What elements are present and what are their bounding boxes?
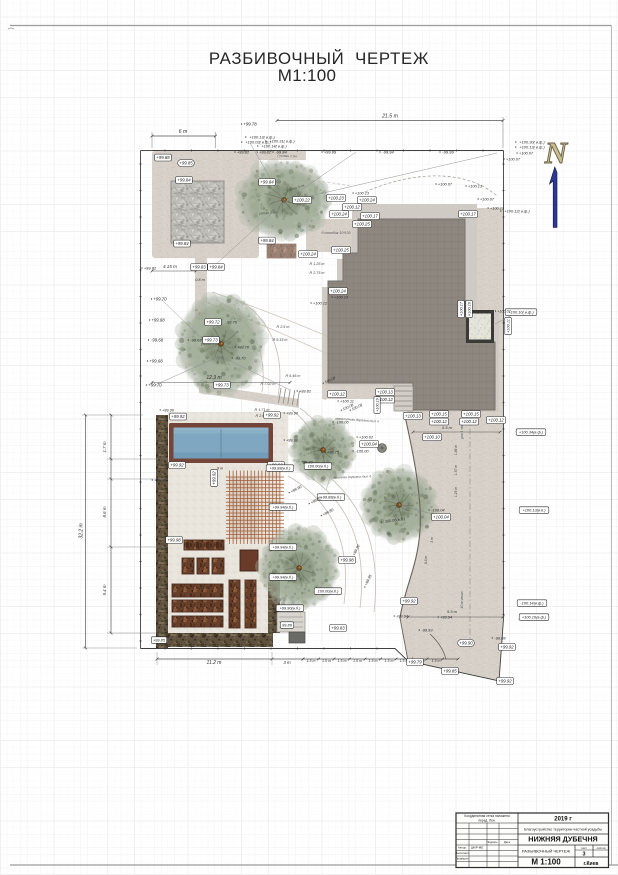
svg-text:+100.34(в.ф.): +100.34(в.ф.) xyxy=(519,429,544,434)
svg-text:3: 3 xyxy=(582,852,585,858)
svg-text:2019 г: 2019 г xyxy=(554,817,572,823)
svg-text:+99.95: +99.95 xyxy=(364,573,373,586)
svg-text:б столбик 10*100: б столбик 10*100 xyxy=(321,231,350,235)
svg-text:+100.13: +100.13 xyxy=(475,309,489,313)
svg-text:+100.13: +100.13 xyxy=(490,205,505,210)
svg-text:+100.10: +100.10 xyxy=(424,435,440,440)
svg-text:+100.12: +100.12 xyxy=(329,392,345,397)
svg-text:Подпись: Подпись xyxy=(486,840,498,844)
svg-text:+100.14( в.ф.): +100.14( в.ф.) xyxy=(261,143,287,148)
svg-text:+99.73: +99.73 xyxy=(204,338,218,343)
svg-text:1.5 m: 1.5 m xyxy=(322,659,331,663)
svg-text:+99.94: +99.94 xyxy=(396,613,409,618)
svg-text:1.65 m: 1.65 m xyxy=(161,445,165,456)
svg-text:+100.13(в.я.): +100.13(в.я.) xyxy=(522,507,546,512)
svg-text:ШИР-МЕ: ШИР-МЕ xyxy=(471,846,483,850)
svg-text:-100.14(в.ф.): -100.14(в.ф.) xyxy=(520,600,544,605)
svg-text:+99.83: +99.83 xyxy=(192,265,206,270)
svg-text:+100.13: +100.13 xyxy=(377,390,393,395)
svg-text:1.5 m: 1.5 m xyxy=(307,659,316,663)
svg-text:+99.92: +99.92 xyxy=(212,471,217,485)
svg-text:+100.13: +100.13 xyxy=(468,183,483,188)
svg-text:8.6 m: 8.6 m xyxy=(102,506,107,517)
svg-text:+100.13: +100.13 xyxy=(355,190,370,195)
svg-text:*99.80: *99.80 xyxy=(301,459,313,464)
svg-text:-99.70: -99.70 xyxy=(234,355,246,360)
svg-text:1.5 m: 1.5 m xyxy=(338,659,347,663)
svg-text:+99.88: +99.88 xyxy=(156,155,170,160)
svg-text:R 2.75 m: R 2.75 m xyxy=(310,271,325,275)
svg-text:+100.22: +100.22 xyxy=(294,198,310,203)
svg-text:+99.98: +99.98 xyxy=(340,558,354,563)
svg-text:+100.25: +100.25 xyxy=(333,248,349,253)
svg-text:5.5 m: 5.5 m xyxy=(442,425,453,430)
svg-text:+99.92: +99.92 xyxy=(171,414,185,419)
svg-text:М 1:100: М 1:100 xyxy=(531,858,561,867)
svg-text:+100.12( в.ф.): +100.12( в.ф.) xyxy=(504,208,530,213)
svg-text:+100.17: +100.17 xyxy=(458,301,463,316)
svg-text:+99.94(в.б.): +99.94(в.б.) xyxy=(273,574,295,579)
svg-text:-99.93: -99.93 xyxy=(421,627,433,632)
svg-text:R 1.25 m: R 1.25 m xyxy=(310,262,325,266)
svg-text:+100.11: +100.11 xyxy=(505,319,510,333)
svg-text:+99.82: +99.82 xyxy=(259,150,272,154)
svg-text:+100.04: +100.04 xyxy=(433,515,449,520)
svg-text:+99.90: +99.90 xyxy=(162,407,175,412)
svg-text:+100.07: +100.07 xyxy=(497,309,511,313)
svg-text:21.5 m: 21.5 m xyxy=(381,114,399,120)
svg-text:НИЖНЯЯ ДУБЕЧНЯ: НИЖНЯЯ ДУБЕЧНЯ xyxy=(528,835,597,844)
svg-text:+99.84: +99.84 xyxy=(209,265,223,270)
svg-text:+100.12: +100.12 xyxy=(431,419,447,424)
svg-text:+99.90: +99.90 xyxy=(286,410,299,415)
svg-text:г.Киев: г.Киев xyxy=(584,861,599,867)
svg-text:+99.92: +99.92 xyxy=(500,645,514,650)
svg-text:1.5 m: 1.5 m xyxy=(385,659,394,663)
svg-text:0.8 m: 0.8 m xyxy=(195,278,205,282)
svg-text:5.5 m: 5.5 m xyxy=(447,609,458,614)
svg-text:12.3 m: 12.3 m xyxy=(206,375,221,381)
svg-text:99.70: 99.70 xyxy=(227,319,238,324)
svg-text:Проверил: Проверил xyxy=(456,857,469,861)
svg-text:+99.88(в.б.): +99.88(в.б.) xyxy=(321,494,343,499)
svg-text:+100.24: +100.24 xyxy=(331,212,347,217)
svg-text:+99.85: +99.85 xyxy=(153,637,166,642)
svg-text:+99.84: +99.84 xyxy=(177,178,191,183)
svg-text:+100.15: +100.15 xyxy=(463,412,479,417)
svg-text:R 9.15 m: R 9.15 m xyxy=(273,338,288,342)
svg-text:-100.00: -100.00 xyxy=(355,448,369,453)
svg-text:9 m: 9 m xyxy=(217,467,223,471)
svg-text:100.00(в.б.): 100.00(в.б.) xyxy=(318,588,340,593)
svg-text:-100.06: -100.06 xyxy=(335,419,349,424)
svg-text:1.5 m: 1.5 m xyxy=(432,659,441,663)
svg-text:3 m: 3 m xyxy=(430,537,434,543)
svg-text:+100.12: +100.12 xyxy=(313,300,328,305)
svg-text:-99.68: -99.68 xyxy=(190,337,202,342)
svg-text:+100.10( в.ф.): +100.10( в.ф.) xyxy=(508,309,534,314)
svg-text:+99.85: +99.85 xyxy=(179,161,193,166)
svg-text:+100.13( в.ф.): +100.13( в.ф.) xyxy=(519,144,545,149)
svg-text:+100.23: +100.23 xyxy=(328,196,344,201)
svg-text:9.4 m: 9.4 m xyxy=(102,584,107,595)
svg-text:Дата: Дата xyxy=(504,840,511,844)
svg-text:8.6 m: 8.6 m xyxy=(424,556,428,565)
svg-text:+100.15: +100.15 xyxy=(431,412,447,417)
svg-text:+100.19: +100.19 xyxy=(375,398,379,411)
svg-text:+99.90(в.б.): +99.90(в.б.) xyxy=(280,605,302,610)
svg-text:+99.90: +99.90 xyxy=(154,477,167,482)
svg-text:+99.94(в.б.): +99.94(в.б.) xyxy=(273,504,295,509)
svg-text:+100.07: +100.07 xyxy=(519,150,534,155)
svg-text:+100.24: +100.24 xyxy=(300,252,316,257)
svg-text:N: N xyxy=(544,135,569,170)
svg-text:1.57 m: 1.57 m xyxy=(454,465,458,476)
svg-text:+99.82: +99.82 xyxy=(299,388,312,393)
svg-text:перед. Лен.: перед. Лен. xyxy=(478,819,495,823)
svg-text:-100.04: -100.04 xyxy=(431,507,445,512)
svg-text:+99.84: +99.84 xyxy=(260,180,274,185)
svg-text:1.5 m: 1.5 m xyxy=(369,659,378,663)
svg-text:R 7.02 m: R 7.02 m xyxy=(261,382,276,386)
svg-text:4.9 m: 4.9 m xyxy=(200,585,211,590)
svg-text:+99.79: +99.79 xyxy=(408,660,422,665)
svg-text:-99.94: -99.94 xyxy=(382,149,394,154)
svg-text:-99.99: -99.99 xyxy=(442,149,454,154)
svg-text:+100.02: +100.02 xyxy=(359,434,374,439)
svg-text:+99.84: +99.84 xyxy=(260,238,274,243)
svg-text:+100.13: +100.13 xyxy=(405,414,421,419)
svg-text:3 m: 3 m xyxy=(283,660,291,665)
svg-text:+100.13: +100.13 xyxy=(334,294,349,299)
svg-text:+99.83: +99.83 xyxy=(331,626,345,631)
svg-text:+99.94(в.б.): +99.94(в.б.) xyxy=(273,544,295,549)
svg-text:+99.84: +99.84 xyxy=(175,241,189,246)
svg-text:+99.88(в.б.): +99.88(в.б.) xyxy=(270,465,292,470)
svg-text:+100.12: +100.12 xyxy=(488,418,504,423)
svg-text:+99.92: +99.92 xyxy=(498,679,512,684)
svg-text:+99.92: +99.92 xyxy=(170,463,184,468)
svg-text:+99.82: +99.82 xyxy=(237,149,250,154)
svg-text:+99.90: +99.90 xyxy=(459,641,473,646)
svg-text:+100.07: +100.07 xyxy=(480,196,495,201)
svg-text:листов: листов xyxy=(597,846,606,850)
svg-text:газонная дорожка тип 4: газонная дорожка тип 4 xyxy=(333,474,371,479)
svg-text:+100.12: +100.12 xyxy=(344,205,360,210)
svg-text:1.25 m: 1.25 m xyxy=(454,487,458,498)
svg-text:Благоустройство территории час: Благоустройство территории частной усадь… xyxy=(524,828,602,832)
svg-text:+100.16(в.ф.): +100.16(в.ф.) xyxy=(522,614,547,619)
svg-text:+99.92: +99.92 xyxy=(402,599,416,604)
svg-text:R 2.5 m: R 2.5 m xyxy=(277,325,290,329)
svg-text:R 6.46 m: R 6.46 m xyxy=(286,374,301,378)
svg-text:40 м чехол: 40 м чехол xyxy=(460,591,464,608)
svg-text:+99.82: +99.82 xyxy=(144,265,157,270)
svg-text:99.86: 99.86 xyxy=(282,622,293,627)
svg-text:+99.70: +99.70 xyxy=(237,344,250,349)
svg-text:+99.92: +99.92 xyxy=(265,413,279,418)
svg-text:+100.25: +100.25 xyxy=(354,222,370,227)
svg-text:+99.98: +99.98 xyxy=(167,538,181,543)
svg-text:+100.16: +100.16 xyxy=(466,301,471,316)
svg-text:+99.85: +99.85 xyxy=(443,669,457,674)
svg-text:11.2 m: 11.2 m xyxy=(207,660,222,666)
svg-text:+99.68: +99.68 xyxy=(149,359,163,364)
svg-text:Выполнил: Выполнил xyxy=(455,851,469,855)
svg-text:лист: лист xyxy=(581,846,588,850)
svg-text:+99.78: +99.78 xyxy=(243,122,257,127)
svg-text:32.2 m: 32.2 m xyxy=(79,523,85,538)
svg-text:-99.84: -99.84 xyxy=(275,149,287,154)
svg-text:+100.17: +100.17 xyxy=(460,212,476,217)
svg-text:+99.90: +99.90 xyxy=(290,484,303,493)
svg-text:+99.72: +99.72 xyxy=(206,320,220,325)
svg-text:1.85 m: 1.85 m xyxy=(454,445,458,456)
svg-text:+100.17: +100.17 xyxy=(362,214,378,219)
svg-text:Автор: Автор xyxy=(458,846,467,850)
svg-text:+99.73: +99.73 xyxy=(215,383,229,388)
svg-text:РАЗБИВОЧНЫЙ ЧЕРТЕЖ: РАЗБИВОЧНЫЙ ЧЕРТЕЖ xyxy=(522,849,571,854)
svg-text:1.7 m: 1.7 m xyxy=(102,441,107,452)
svg-text:+99.75: +99.75 xyxy=(327,449,340,454)
svg-text:-99.68: -99.68 xyxy=(151,338,164,343)
svg-text:+99.80: +99.80 xyxy=(322,507,335,516)
svg-text:+99.90: +99.90 xyxy=(286,437,299,442)
svg-text:+99.70: +99.70 xyxy=(153,297,167,302)
svg-text:+99.70: +99.70 xyxy=(148,383,162,388)
svg-text:+99.89: +99.89 xyxy=(324,149,337,154)
svg-text:М1:100: М1:100 xyxy=(278,66,337,85)
svg-text:4.15 m: 4.15 m xyxy=(163,264,177,269)
svg-text:Координатная сетка наложена: Координатная сетка наложена xyxy=(464,814,509,818)
svg-text:+100.07: +100.07 xyxy=(506,156,521,161)
svg-text:6 m: 6 m xyxy=(179,129,188,135)
svg-text:+100.04: +100.04 xyxy=(361,442,377,447)
svg-text:+100.07: +100.07 xyxy=(438,181,453,186)
svg-text:-99.88: -99.88 xyxy=(494,635,506,640)
svg-text:+99.94: +99.94 xyxy=(440,614,453,619)
svg-text:+99.68: +99.68 xyxy=(151,318,165,323)
svg-text:+100.24: +100.24 xyxy=(359,198,375,203)
svg-text:1.5 m: 1.5 m xyxy=(353,659,362,663)
svg-text:+100.12: +100.12 xyxy=(461,419,477,424)
svg-text:+100.24: +100.24 xyxy=(330,289,346,294)
